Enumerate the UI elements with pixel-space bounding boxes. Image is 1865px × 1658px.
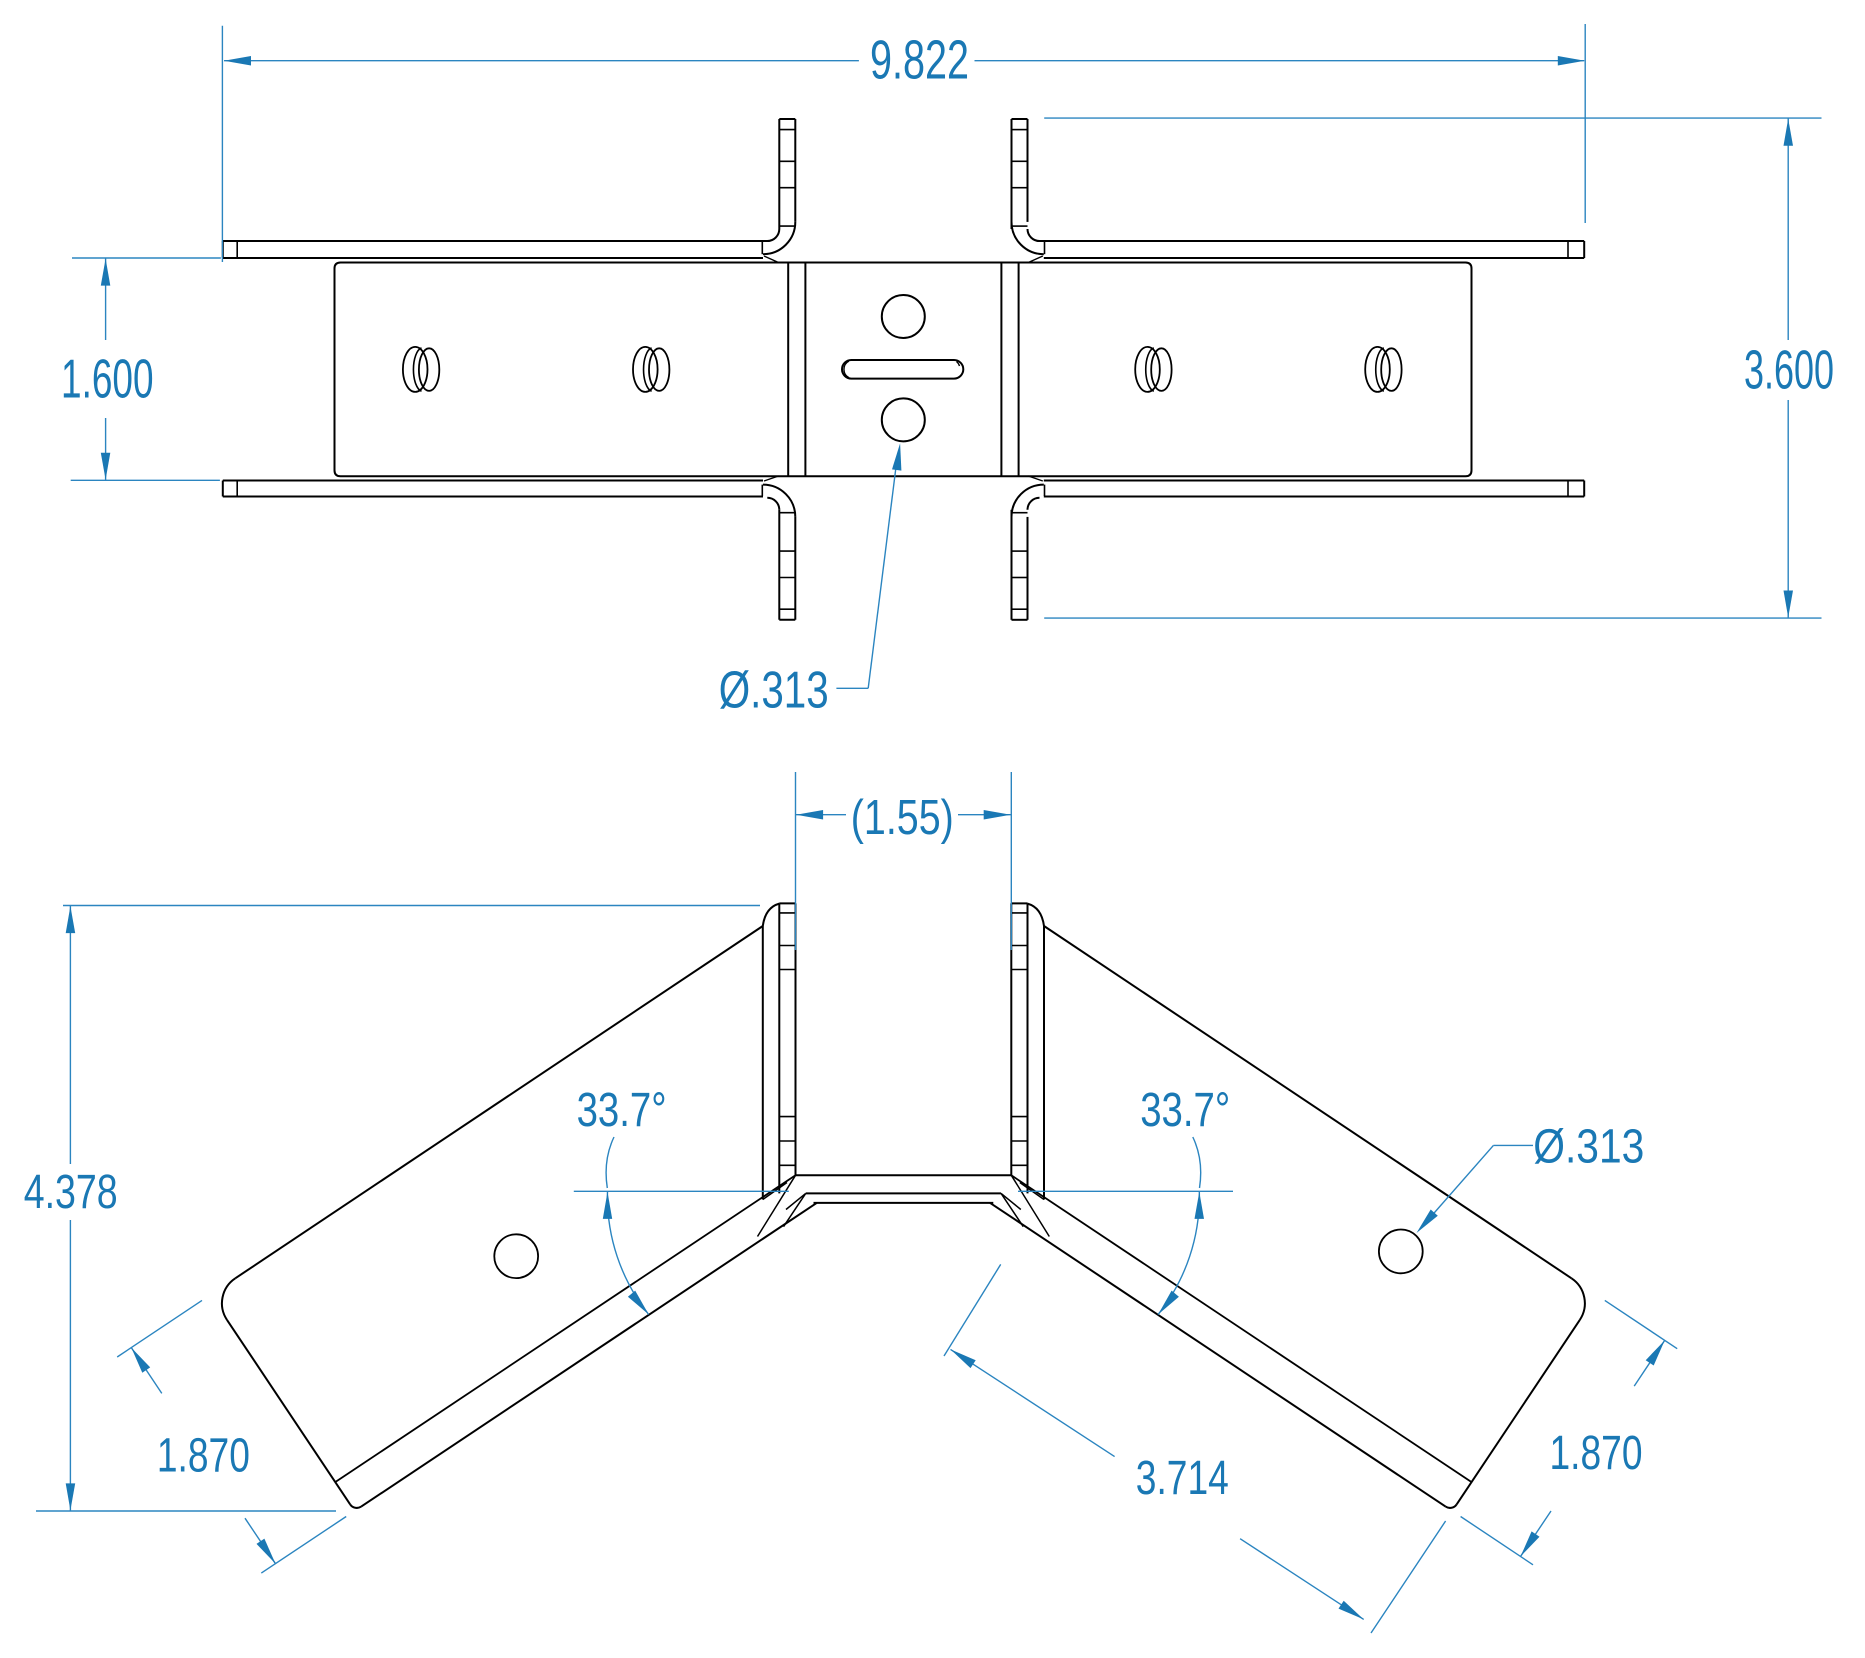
svg-text:Ø.313: Ø.313 — [1533, 1119, 1644, 1173]
svg-text:9.822: 9.822 — [870, 30, 969, 91]
svg-text:3.714: 3.714 — [1136, 1451, 1229, 1505]
svg-text:(1.55): (1.55) — [851, 790, 954, 845]
svg-text:3.600: 3.600 — [1744, 340, 1834, 401]
svg-text:1.600: 1.600 — [61, 349, 154, 410]
svg-text:1.870: 1.870 — [1550, 1426, 1643, 1480]
svg-text:1.870: 1.870 — [157, 1429, 250, 1483]
svg-text:Ø.313: Ø.313 — [719, 661, 829, 719]
svg-text:33.7°: 33.7° — [577, 1083, 667, 1137]
svg-text:4.378: 4.378 — [24, 1165, 118, 1219]
svg-text:33.7°: 33.7° — [1140, 1083, 1230, 1137]
